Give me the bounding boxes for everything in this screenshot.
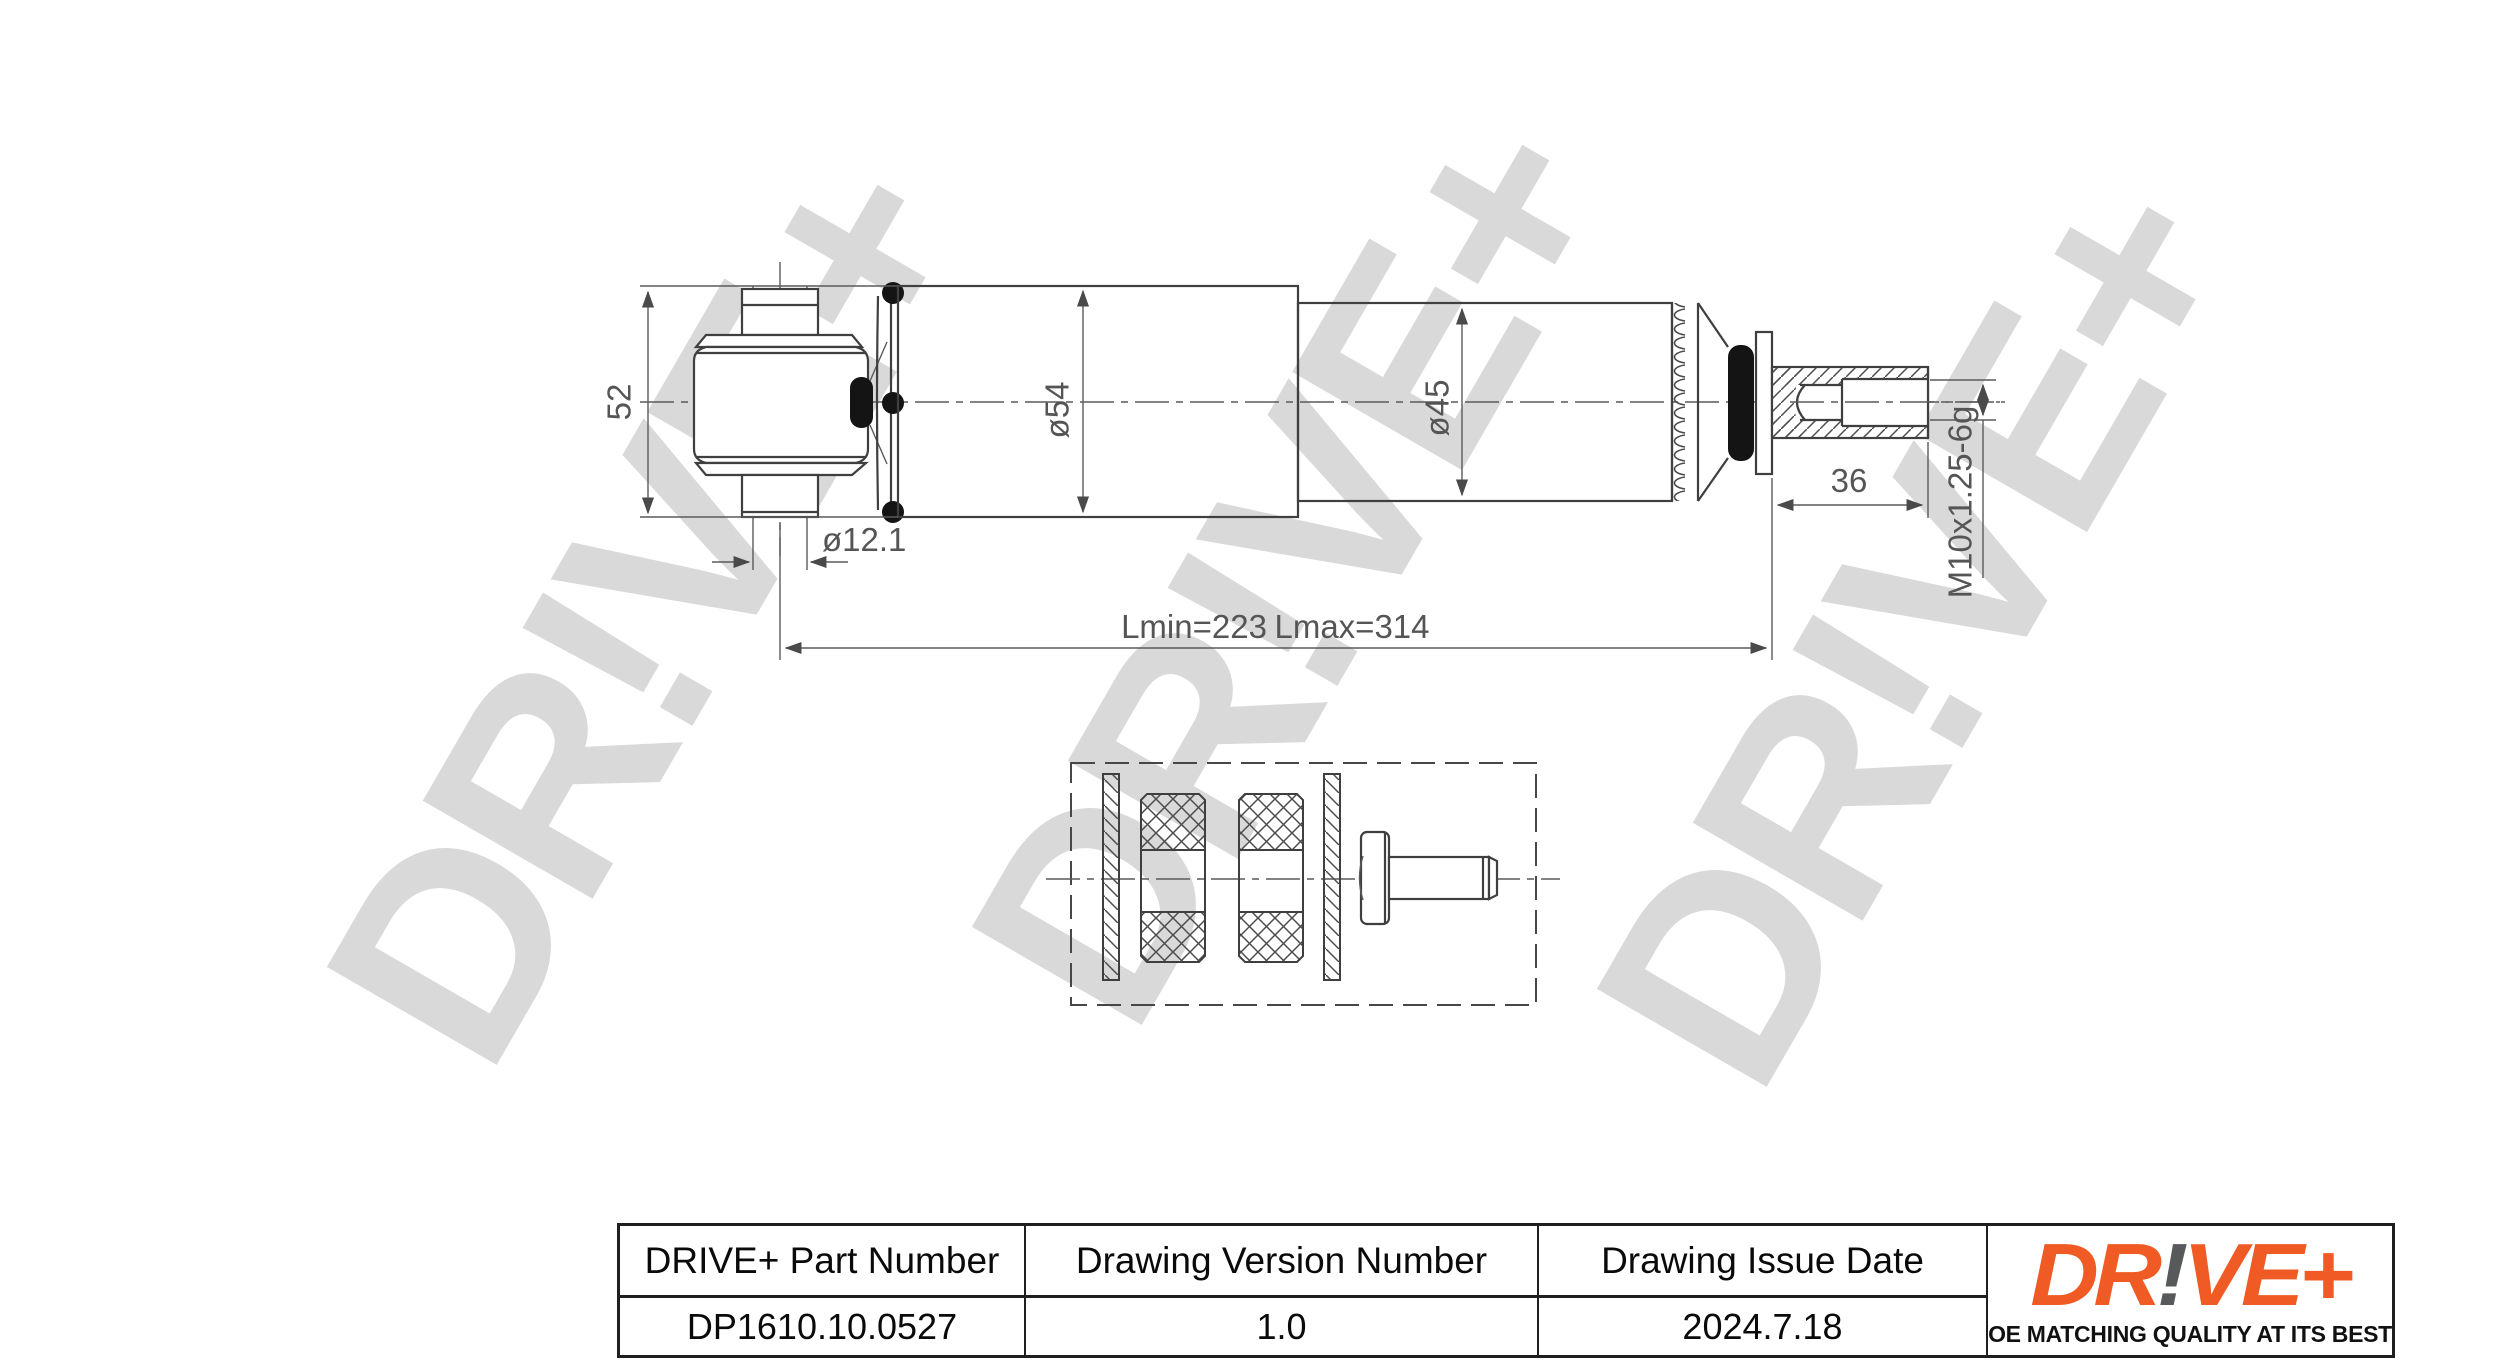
logo-exclamation: !: [2157, 1225, 2183, 1324]
dim-label-tube-diameter: ø45: [1419, 380, 1456, 437]
dim-label-pin-bore: ø12.1: [822, 521, 906, 558]
dim-label-length-max: Lmax=314: [1274, 608, 1429, 645]
eyelet-bushing: [694, 262, 887, 556]
washer-plate: [1756, 332, 1772, 474]
dim-label-body-diameter: ø54: [1039, 382, 1076, 439]
brand-logo-cell: DR!VE+ OE MATCHING QUALITY AT ITS BEST: [1986, 1226, 2392, 1355]
drive-plus-logo: DR!VE+: [2031, 1233, 2350, 1317]
logo-part2: VE+: [2183, 1225, 2349, 1324]
version-value: 1.0: [1024, 1298, 1537, 1355]
shock-absorber-drawing: 52 ø12.1 ø54 ø45 36 M10x1.25-6g: [0, 0, 2500, 1361]
kit-bolt: [1360, 832, 1498, 924]
logo-tagline: OE MATCHING QUALITY AT ITS BEST: [1988, 1321, 2392, 1348]
logo-part1: DR: [2031, 1225, 2157, 1324]
kit-washer-left: [1103, 774, 1119, 980]
kit-bushing-2: [1239, 794, 1303, 962]
kit-washer-right: [1324, 774, 1340, 980]
dim-label-eye-height: 52: [601, 384, 638, 421]
title-block-table: DRIVE+ Part Number Drawing Version Numbe…: [617, 1223, 2395, 1358]
part-number-value: DP1610.10.0527: [620, 1298, 1024, 1355]
column-header-issue-date: Drawing Issue Date: [1537, 1226, 1986, 1298]
mounting-kit-view: [1046, 763, 1560, 1005]
dim-label-thread-spec: M10x1.25-6g: [1942, 406, 1979, 599]
dim-label-length-min: Lmin=223: [1121, 608, 1267, 645]
kit-bushing-1: [1141, 794, 1205, 962]
main-view: 52 ø12.1 ø54 ø45 36 M10x1.25-6g: [601, 262, 2005, 660]
issue-date-value: 2024.7.18: [1537, 1298, 1986, 1355]
bump-ring: [1728, 345, 1754, 461]
column-header-version: Drawing Version Number: [1024, 1226, 1537, 1298]
dim-label-stud-length: 36: [1831, 462, 1868, 499]
column-header-part-number: DRIVE+ Part Number: [620, 1226, 1024, 1298]
